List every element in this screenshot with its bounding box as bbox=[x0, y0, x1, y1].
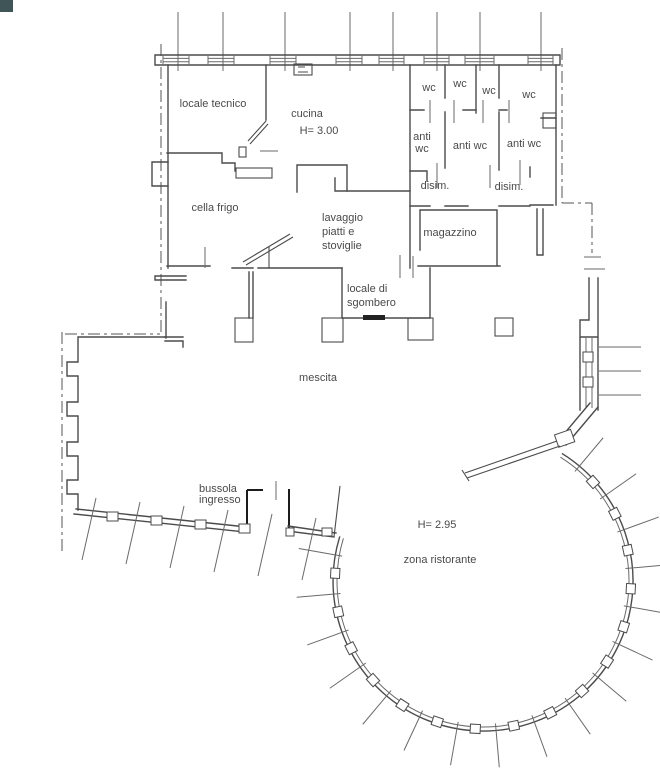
room-labels: locale tecnico cucina H= 3.00 wc wc wc w… bbox=[180, 78, 542, 566]
corner-mark bbox=[0, 0, 13, 12]
kitchen-fixtures bbox=[236, 64, 556, 178]
crenellated-west-wall bbox=[67, 337, 183, 510]
label-lavaggio-2: piatti e bbox=[322, 226, 354, 238]
label-magazzino: magazzino bbox=[423, 227, 476, 239]
label-anti-wc-1a: anti bbox=[413, 131, 431, 143]
label-wc-1: wc bbox=[421, 82, 436, 94]
label-anti-wc-1b: wc bbox=[414, 143, 429, 155]
label-disim-2: disim. bbox=[495, 181, 524, 193]
label-sgombero-2: sgombero bbox=[347, 297, 396, 309]
label-lavaggio-1: lavaggio bbox=[322, 212, 363, 224]
label-wc-2: wc bbox=[452, 78, 467, 90]
label-sgombero-1: locale di bbox=[347, 283, 387, 295]
floor-plan-page: locale tecnico cucina H= 3.00 wc wc wc w… bbox=[0, 0, 660, 768]
label-locale-tecnico: locale tecnico bbox=[180, 98, 247, 110]
facade-mullion-ticks bbox=[82, 498, 316, 580]
label-wc-3: wc bbox=[481, 85, 496, 97]
label-disim-1: disim. bbox=[421, 180, 450, 192]
label-anti-wc-2: anti wc bbox=[453, 140, 488, 152]
label-bussola-2: ingresso bbox=[199, 494, 241, 506]
label-cucina: cucina bbox=[291, 108, 324, 120]
east-glazed-wall bbox=[554, 278, 641, 447]
label-cella-frigo: cella frigo bbox=[191, 202, 238, 214]
boundary-dashdot-lines bbox=[62, 44, 592, 552]
label-zona-ristorante: zona ristorante bbox=[404, 554, 477, 566]
sgombero-threshold bbox=[363, 315, 385, 320]
arc-posts bbox=[330, 475, 635, 733]
label-ristorante-height: H= 2.95 bbox=[418, 519, 457, 531]
pillars bbox=[235, 318, 513, 342]
dining-room-circle bbox=[297, 438, 660, 768]
label-lavaggio-3: stoviglie bbox=[322, 240, 362, 252]
label-anti-wc-3: anti wc bbox=[507, 138, 542, 150]
radial-ticks bbox=[297, 438, 660, 768]
label-cucina-height: H= 3.00 bbox=[300, 125, 339, 137]
label-mescita: mescita bbox=[299, 372, 338, 384]
label-wc-4: wc bbox=[521, 89, 536, 101]
north-wall-with-windows bbox=[155, 55, 560, 65]
floor-plan-canvas: locale tecnico cucina H= 3.00 wc wc wc w… bbox=[0, 0, 660, 768]
door-leaves bbox=[243, 121, 293, 268]
corridor-rail bbox=[462, 441, 560, 481]
